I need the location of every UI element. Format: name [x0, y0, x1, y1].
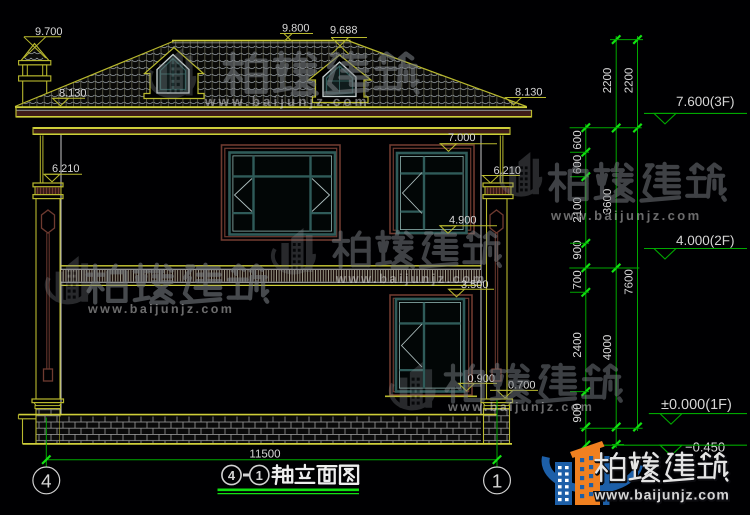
svg-text:www.baijunjz.com: www.baijunjz.com [594, 487, 730, 503]
svg-text:4.900: 4.900 [449, 215, 477, 227]
svg-text:1: 1 [256, 468, 263, 483]
svg-text:4: 4 [228, 468, 236, 483]
svg-text:7600: 7600 [624, 269, 636, 295]
svg-text:www.baijunjz.com: www.baijunjz.com [87, 302, 234, 316]
svg-text:2400: 2400 [572, 332, 584, 358]
svg-text:1: 1 [492, 472, 503, 493]
svg-text:www.baijunjz.com: www.baijunjz.com [550, 208, 702, 223]
svg-text:9.700: 9.700 [35, 26, 63, 38]
svg-text:7.600(3F): 7.600(3F) [676, 94, 735, 109]
svg-text:8.130: 8.130 [59, 88, 87, 100]
svg-text:www.baijunjz.com: www.baijunjz.com [447, 400, 594, 414]
svg-text:4.000(2F): 4.000(2F) [676, 233, 735, 248]
svg-text:2200: 2200 [624, 68, 636, 94]
svg-text:8.130: 8.130 [515, 87, 543, 99]
svg-text:11500: 11500 [249, 449, 280, 461]
svg-text:600: 600 [572, 130, 584, 149]
svg-text:9.800: 9.800 [282, 23, 310, 35]
svg-text:www.baijunjz.com: www.baijunjz.com [335, 271, 487, 286]
svg-text:±0.000(1F): ±0.000(1F) [661, 397, 732, 413]
svg-text:www.baijunjz.com: www.baijunjz.com [204, 94, 370, 109]
svg-text:2200: 2200 [602, 68, 614, 94]
svg-text:4000: 4000 [602, 335, 614, 361]
svg-text:9.688: 9.688 [330, 25, 358, 37]
svg-text:4: 4 [41, 472, 52, 493]
svg-text:7.000: 7.000 [448, 132, 476, 144]
svg-text:6.210: 6.210 [52, 163, 80, 175]
svg-text:700: 700 [572, 270, 584, 289]
